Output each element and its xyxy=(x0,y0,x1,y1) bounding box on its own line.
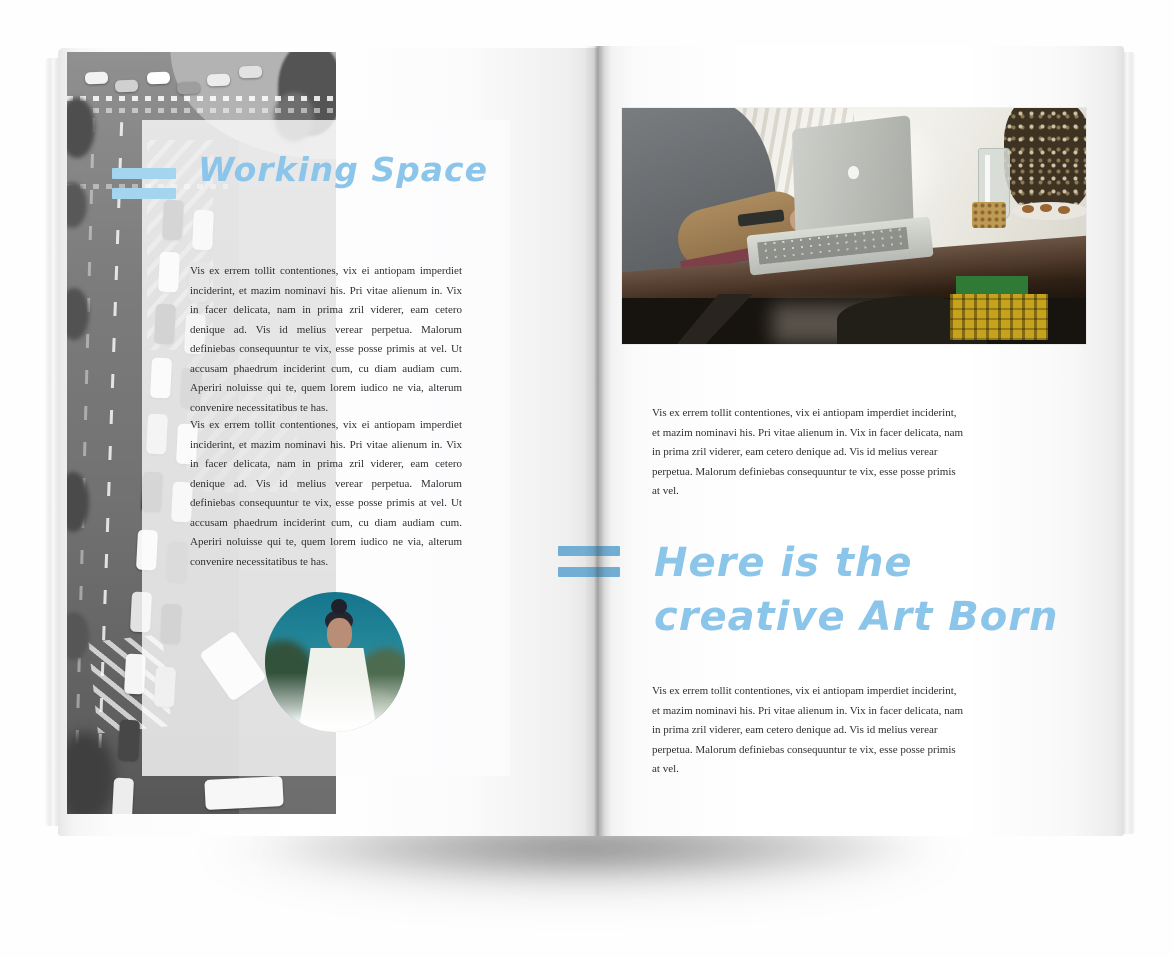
section-title-line2: creative Art Born xyxy=(654,590,1058,644)
section-title-line1: Here is the xyxy=(654,536,1058,590)
equals-accent-icon xyxy=(558,567,620,577)
body-paragraph: Vis ex errem tollit contentiones, vix ei… xyxy=(190,416,462,572)
cookie-shape xyxy=(1058,206,1070,214)
glass-highlight xyxy=(985,155,990,207)
green-crate-shape xyxy=(956,276,1028,296)
car-shape xyxy=(177,82,200,95)
apple-logo-icon xyxy=(848,166,859,179)
tree-shape xyxy=(67,732,115,814)
photo-fade xyxy=(265,592,405,732)
yellow-crate-shape xyxy=(950,294,1048,340)
snack-cup-shape xyxy=(972,202,1006,228)
car-shape xyxy=(239,66,262,79)
cookie-shape xyxy=(1022,205,1034,213)
body-paragraph: Vis ex errem tollit contentiones, vix ei… xyxy=(652,682,964,780)
body-paragraph: Vis ex errem tollit contentiones, vix ei… xyxy=(190,262,462,418)
dried-flowers-shape xyxy=(1004,108,1086,216)
keyboard-keys-shape xyxy=(757,227,908,265)
plate-shape xyxy=(1012,202,1086,220)
section-title: Here is the creative Art Born xyxy=(654,536,1058,644)
cookie-shape xyxy=(1040,204,1052,212)
page-stack-edge-right xyxy=(1122,52,1136,834)
workspace-photo xyxy=(622,108,1086,344)
car-shape xyxy=(207,74,230,87)
car-shape xyxy=(147,72,170,85)
tree-shape xyxy=(67,472,89,532)
right-page: Vis ex errem tollit contentiones, vix ei… xyxy=(598,46,1124,836)
portrait-photo xyxy=(265,592,405,732)
magazine-spread-mockup: Working Space Vis ex errem tollit conten… xyxy=(0,0,1173,958)
truck-shape xyxy=(204,776,283,810)
equals-accent-icon xyxy=(112,168,176,179)
car-shape xyxy=(118,720,140,761)
car-shape xyxy=(85,72,108,85)
left-page: Working Space Vis ex errem tollit conten… xyxy=(58,48,598,836)
equals-accent-icon xyxy=(112,188,176,199)
crosswalk-shape xyxy=(67,96,336,101)
tree-shape xyxy=(67,612,89,660)
page-title: Working Space xyxy=(198,150,488,189)
car-shape xyxy=(112,778,134,814)
body-paragraph: Vis ex errem tollit contentiones, vix ei… xyxy=(652,404,964,502)
equals-accent-icon xyxy=(558,546,620,556)
car-shape xyxy=(115,80,138,93)
crosswalk-shape xyxy=(67,108,336,113)
